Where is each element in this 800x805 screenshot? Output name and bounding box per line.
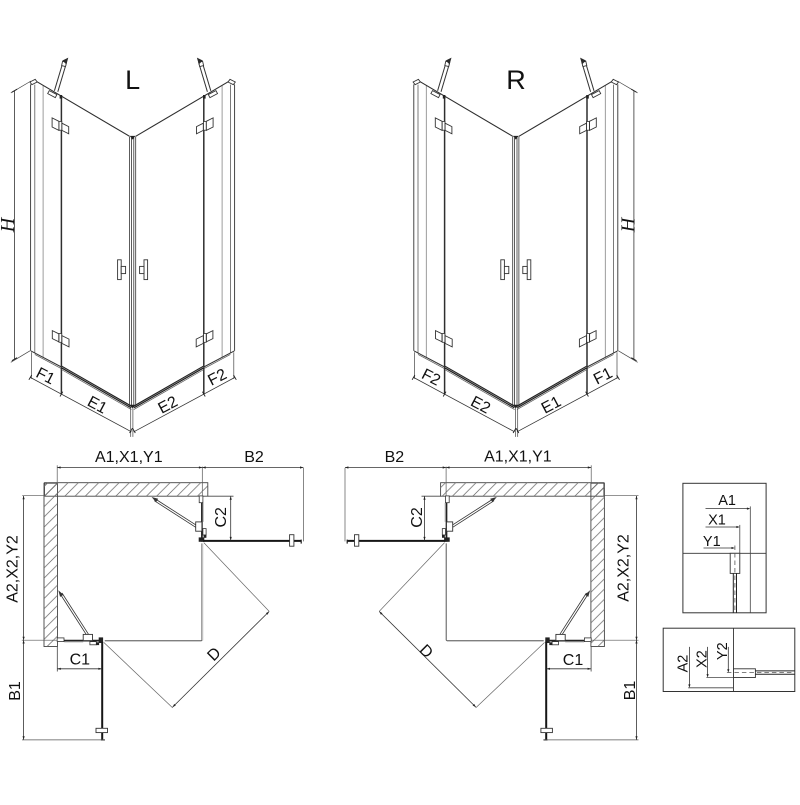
svg-text:A1: A1 <box>718 493 736 509</box>
svg-text:X1: X1 <box>708 513 726 529</box>
svg-text:A2: A2 <box>675 655 691 673</box>
svg-text:A2,X2,Y2: A2,X2,Y2 <box>616 534 633 602</box>
svg-text:A1,X1,Y1: A1,X1,Y1 <box>484 449 552 466</box>
svg-text:H: H <box>0 216 19 233</box>
svg-text:C1: C1 <box>563 652 584 669</box>
svg-text:H: H <box>617 216 639 233</box>
svg-text:A2,X2,Y2: A2,X2,Y2 <box>4 535 21 603</box>
svg-text:B2: B2 <box>244 449 264 466</box>
svg-text:B2: B2 <box>385 449 405 466</box>
svg-text:C2: C2 <box>213 507 230 528</box>
svg-text:A1,X1,Y1: A1,X1,Y1 <box>95 449 163 466</box>
svg-text:L: L <box>125 65 140 95</box>
svg-text:C2: C2 <box>409 507 426 528</box>
svg-text:B1: B1 <box>7 681 24 701</box>
svg-text:R: R <box>506 65 526 95</box>
svg-text:Y1: Y1 <box>703 534 721 550</box>
svg-text:X2: X2 <box>694 650 710 668</box>
svg-text:B1: B1 <box>622 681 639 701</box>
svg-text:C1: C1 <box>70 651 91 668</box>
svg-text:Y2: Y2 <box>715 642 731 660</box>
